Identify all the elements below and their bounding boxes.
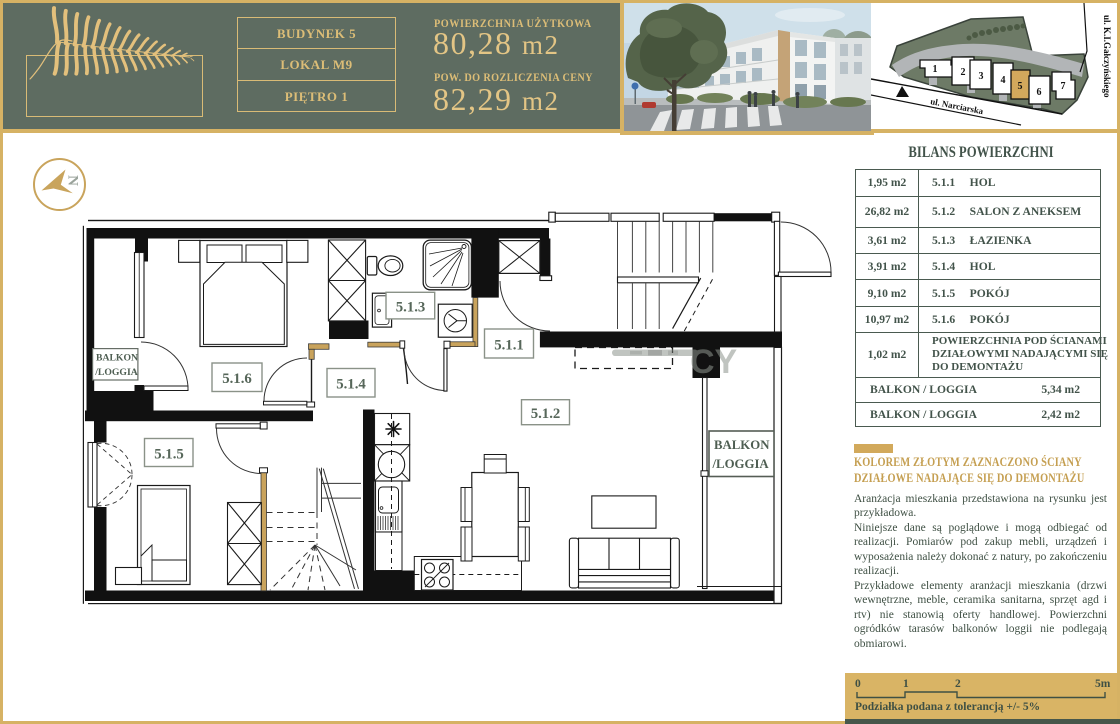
- svg-text:CY: CY: [690, 343, 738, 381]
- svg-text:/LOGGIA: /LOGGIA: [94, 367, 138, 378]
- svg-text:/LOGGIA: /LOGGIA: [712, 457, 770, 471]
- svg-text:BALKON: BALKON: [96, 353, 138, 364]
- svg-text:5.1.6: 5.1.6: [222, 371, 252, 387]
- svg-text:5.1.3: 5.1.3: [396, 300, 426, 316]
- svg-text:5.1.2: 5.1.2: [531, 406, 561, 422]
- svg-text:5.1.5: 5.1.5: [154, 447, 184, 463]
- svg-text:N: N: [65, 175, 81, 186]
- svg-text:BALKON: BALKON: [714, 438, 770, 452]
- svg-text:5.1.4: 5.1.4: [336, 377, 366, 393]
- svg-text:5.1.1: 5.1.1: [494, 338, 524, 354]
